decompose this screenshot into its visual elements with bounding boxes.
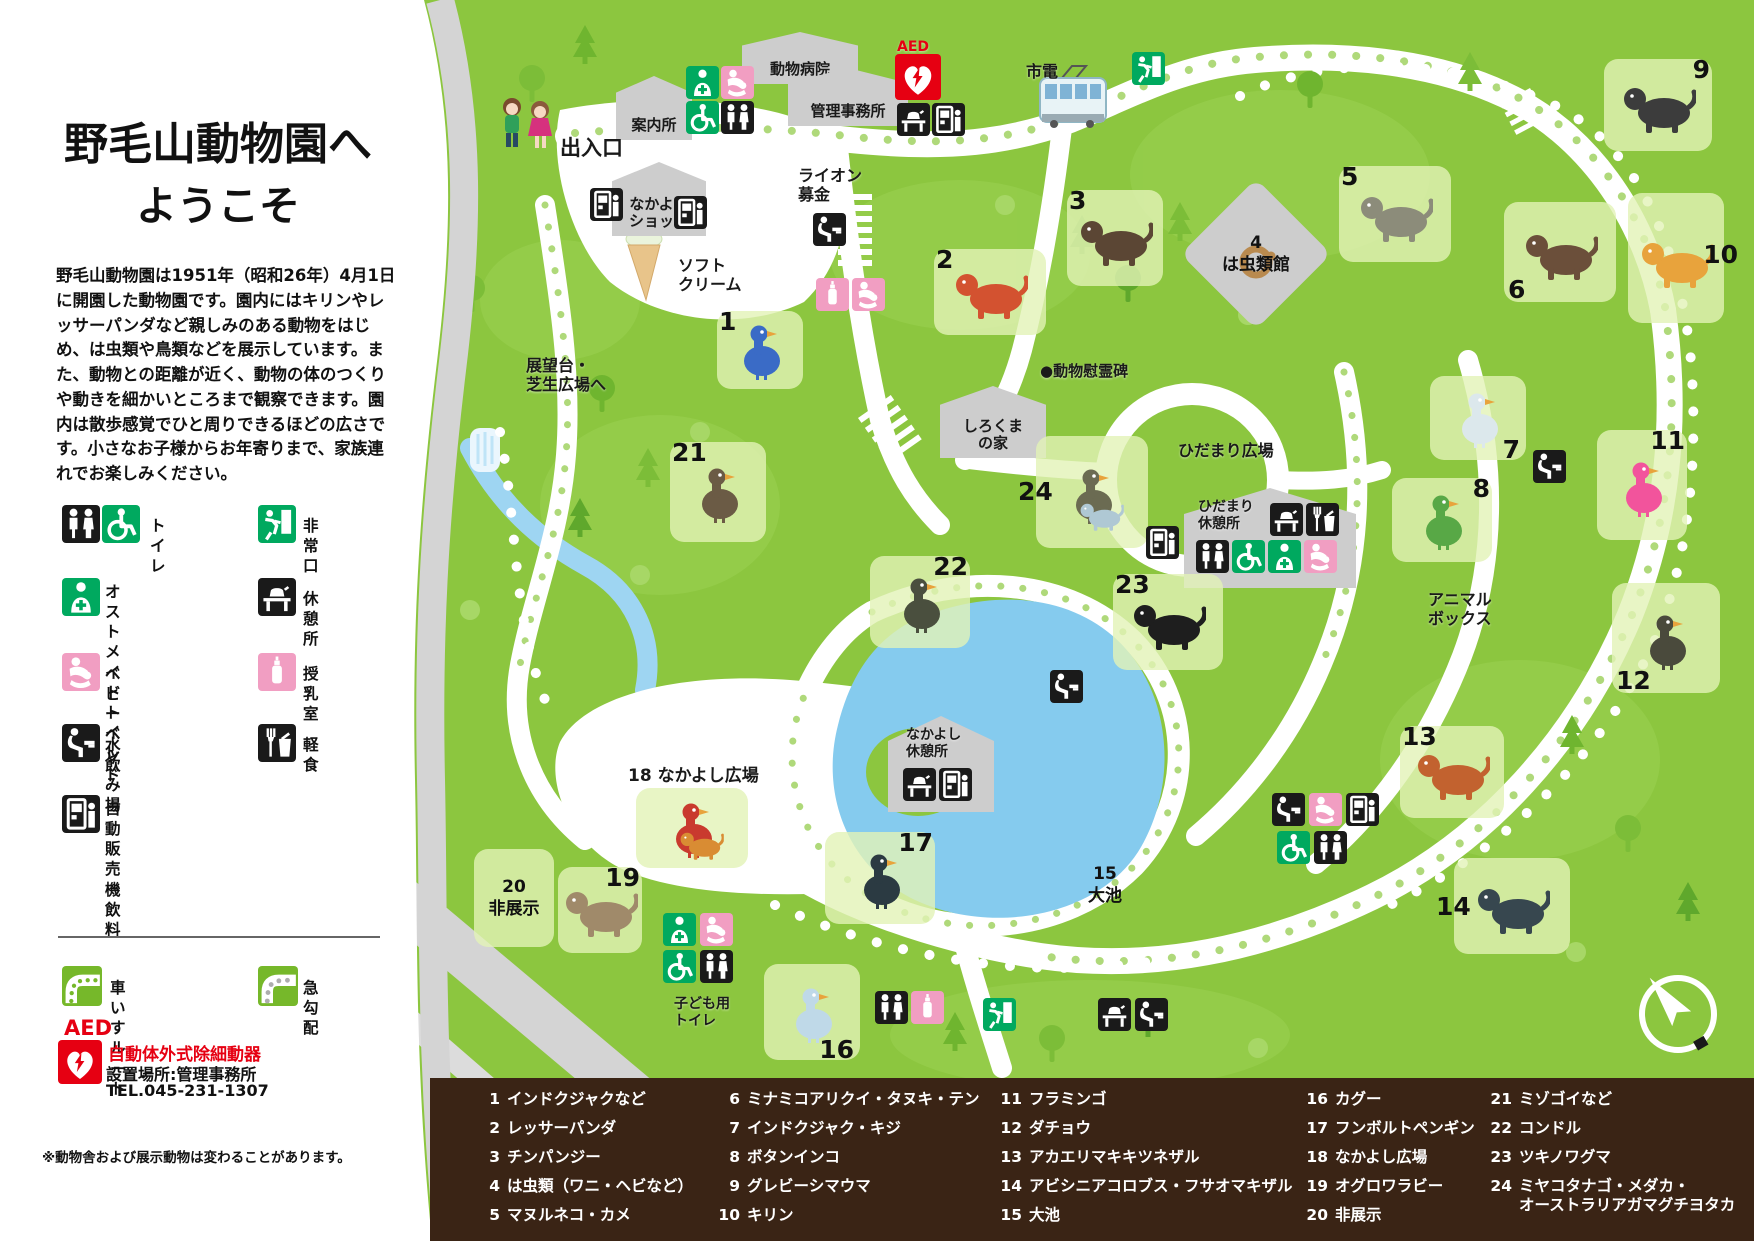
- index-entry-2: 2レッサーパンダ: [472, 1119, 616, 1138]
- legend-label-5: 授乳室: [303, 664, 319, 724]
- exhibit-marker-4: 4 は虫類館: [1191, 189, 1321, 319]
- exhibit-marker-9: 9: [1604, 59, 1712, 151]
- exhibit-marker-6: 6: [1504, 202, 1616, 302]
- exhibit-number: 16: [819, 1037, 854, 1062]
- legend-label-3: 休憩所: [303, 589, 319, 649]
- index-animal-name: レッサーパンダ: [507, 1119, 616, 1138]
- index-number: 2: [472, 1119, 500, 1138]
- baby-icon-12: [852, 278, 885, 311]
- nursing-icon-11: [816, 278, 849, 311]
- index-number: 15: [994, 1206, 1022, 1225]
- exhibit-marker-5: 5: [1339, 166, 1451, 262]
- exhibit-number: 14: [1436, 894, 1471, 919]
- index-animal-name: アビシニアコロブス・フサオマキザル: [1029, 1177, 1293, 1196]
- exhibit-number: 5: [1341, 164, 1358, 189]
- index-animal-name: インドクジャクなど: [507, 1090, 646, 1109]
- wheelchair-route-icon-legend-0: [62, 966, 102, 1006]
- ostomate-icon-18: [1268, 540, 1301, 573]
- index-entry-21: 21ミゾゴイなど: [1484, 1090, 1612, 1109]
- animal-illustration: [1077, 212, 1153, 274]
- index-animal-name: フラミンゴ: [1029, 1090, 1107, 1109]
- index-number: 7: [712, 1119, 740, 1138]
- exit-icon-29: [983, 998, 1016, 1031]
- index-entry-18: 18なかよし広場: [1300, 1148, 1427, 1167]
- exhibit-number: 22: [933, 554, 968, 579]
- route-legend-label-1: 急勾配: [303, 978, 319, 1038]
- toilet-icon-36: [875, 991, 908, 1024]
- exhibit-number: 10: [1703, 242, 1738, 267]
- exhibit-marker-16: 16: [764, 964, 860, 1060]
- rest-icon-22: [903, 768, 936, 801]
- exhibit-marker-3: 3: [1067, 190, 1163, 286]
- aed-tel: TEL.045-231-1307: [106, 1081, 269, 1100]
- index-animal-name: チンパンジー: [507, 1148, 601, 1167]
- index-entry-11: 11フラミンゴ: [994, 1090, 1107, 1109]
- animal-illustration: [1604, 460, 1680, 522]
- map-label-9: なかよし 休憩所: [906, 727, 961, 761]
- fountain-icon-21: [1533, 450, 1566, 483]
- exhibit-number: 8: [1473, 476, 1490, 501]
- index-animal-name: キリン: [747, 1206, 794, 1225]
- aed-icon-4: [895, 54, 941, 100]
- index-number: 20: [1300, 1206, 1328, 1225]
- index-number: 8: [712, 1148, 740, 1167]
- nursing-icon-37: [911, 991, 944, 1024]
- aed-icon: [58, 1040, 102, 1084]
- fountain-icon-legend-6-0: [62, 724, 100, 762]
- ostomate-icon-32: [663, 913, 696, 946]
- exhibit-number: 24: [1018, 479, 1053, 504]
- baby-icon-33: [700, 913, 733, 946]
- exhibit-number: 21: [672, 440, 707, 465]
- index-animal-name: 大池: [1029, 1206, 1060, 1225]
- wheelchair-icon-34: [663, 950, 696, 983]
- index-animal-name: オグロワラビー: [1335, 1177, 1443, 1196]
- aed-abbr: AED: [64, 1016, 112, 1040]
- index-number: 17: [1300, 1119, 1328, 1138]
- rest-icon-legend-3-0: [258, 578, 296, 616]
- index-entry-6: 6ミナミコアリクイ・タヌキ・テン: [712, 1090, 980, 1109]
- index-animal-name: ダチョウ: [1029, 1119, 1091, 1138]
- index-number: 4: [472, 1177, 500, 1196]
- animal-illustration: [1474, 880, 1550, 942]
- index-entry-10: 10キリン: [712, 1206, 794, 1225]
- rest-icon-5: [897, 103, 930, 136]
- index-animal-name: ミヤコタナゴ・メダカ・ オーストラリアガマグチヨタカ: [1519, 1177, 1735, 1216]
- fountain-icon-10: [813, 213, 846, 246]
- index-animal-name: 非展示: [1335, 1206, 1382, 1225]
- building-label: 管理事務所: [788, 103, 908, 126]
- index-animal-name: フンボルトペンギン: [1335, 1119, 1475, 1138]
- exhibit-text: 4 は虫類館: [1191, 189, 1321, 319]
- index-number: 14: [994, 1177, 1022, 1196]
- index-number: 10: [712, 1206, 740, 1225]
- exhibit-marker-17: 17: [825, 832, 935, 924]
- index-number: 12: [994, 1119, 1022, 1138]
- rest-icon-30: [1098, 998, 1131, 1031]
- animal-illustration: [952, 265, 1028, 327]
- fountain-icon-31: [1135, 998, 1168, 1031]
- toilet-icon-16: [1196, 540, 1229, 573]
- index-animal-name: グレビーシマウマ: [747, 1177, 871, 1196]
- index-entry-17: 17フンボルトペンギン: [1300, 1119, 1475, 1138]
- exhibit-marker-24: 24: [1036, 436, 1148, 548]
- map-label-6: ひだまり広場: [1178, 441, 1274, 460]
- vending-icon-9: [674, 196, 707, 229]
- building-label: しろくま の家: [940, 418, 1046, 459]
- building-label: [888, 806, 994, 812]
- vending-icon-6: [932, 103, 965, 136]
- index-number: 21: [1484, 1090, 1512, 1109]
- index-entry-13: 13アカエリマキキツネザル: [994, 1148, 1200, 1167]
- exhibit-number: 2: [936, 247, 953, 272]
- divider: [58, 936, 380, 938]
- exit-icon-legend-1-0: [258, 505, 296, 543]
- map-label-7: ひだまり 休憩所: [1198, 499, 1254, 533]
- animal-illustration-2: [678, 827, 724, 864]
- animal-illustration: [1130, 596, 1206, 658]
- zoo-title-line2: ようこそ: [0, 172, 436, 232]
- building-4: しろくま の家: [940, 386, 1046, 458]
- toilet-icon-3: [721, 101, 754, 134]
- wheelchair-icon-legend-0-1: [102, 505, 140, 543]
- meal-icon-15: [1306, 503, 1339, 536]
- legend-label-1: 非常口: [303, 516, 319, 576]
- ostomate-icon-legend-2-0: [62, 578, 100, 616]
- index-entry-23: 23ツキノワグマ: [1484, 1148, 1611, 1167]
- exhibit-marker-18: [636, 788, 748, 868]
- exhibit-number: 13: [1402, 724, 1437, 749]
- map-label-12: AED: [897, 39, 929, 56]
- exhibit-marker-11: 11: [1597, 430, 1687, 540]
- exhibit-marker-21: 21: [670, 442, 766, 542]
- zoo-map-poster: 案内所動物病院管理事務所なかよし ショップしろくま の家出入口市電ソフト クリー…: [0, 0, 1754, 1241]
- index-animal-name: は虫類（ワニ・ヘビなど）: [507, 1177, 693, 1196]
- footnote: ※動物舎および展示動物は変わることがあります。: [42, 1146, 402, 1166]
- info-panel: 野毛山動物園へ ようこそ 野毛山動物園は1951年（昭和26年）4月1日に開園し…: [0, 0, 460, 1241]
- index-number: 16: [1300, 1090, 1328, 1109]
- map-label-5: ●動物慰霊碑: [1040, 362, 1128, 380]
- exhibit-marker-13: 13: [1400, 726, 1504, 818]
- exhibit-marker-22: 22: [870, 556, 970, 648]
- index-entry-8: 8ボタンインコ: [712, 1148, 840, 1167]
- index-number: 13: [994, 1148, 1022, 1167]
- map-label-2: ソフト クリーム: [678, 256, 742, 294]
- intro-text: 野毛山動物園は1951年（昭和26年）4月1日に開園した動物園です。園内にはキリ…: [56, 264, 398, 487]
- ostomate-icon-0: [686, 66, 719, 99]
- nursing-icon-legend-5-0: [258, 653, 296, 691]
- index-animal-name: ミナミコアリクイ・タヌキ・テン: [747, 1090, 980, 1109]
- index-entry-19: 19オグロワラビー: [1300, 1177, 1443, 1196]
- index-animal-name: ミゾゴイなど: [1519, 1090, 1612, 1109]
- exhibit-text: 20 非展示: [474, 849, 554, 947]
- baby-icon-1: [721, 66, 754, 99]
- index-entry-5: 5マヌルネコ・カメ: [472, 1206, 631, 1225]
- animal-illustration: [1522, 226, 1598, 288]
- index-animal-name: ツキノワグマ: [1519, 1148, 1611, 1167]
- index-entry-24: 24ミヤコタナゴ・メダカ・ オーストラリアガマグチヨタカ: [1484, 1177, 1735, 1216]
- index-entry-16: 16カグー: [1300, 1090, 1382, 1109]
- exhibit-number: 1: [719, 309, 736, 334]
- animal-illustration: [842, 852, 918, 914]
- exhibit-marker-15: 15 大池: [1060, 852, 1150, 918]
- steep-icon-legend-1: [258, 966, 298, 1006]
- vending-icon-13: [1146, 526, 1179, 559]
- map-label-0: 出入口: [560, 136, 623, 161]
- index-number: 5: [472, 1206, 500, 1225]
- vending-icon-26: [1346, 793, 1379, 826]
- index-entry-22: 22コンドル: [1484, 1119, 1581, 1138]
- index-number: 1: [472, 1090, 500, 1109]
- legend-label-8: 自動販売機 飲料: [105, 799, 121, 940]
- index-entry-14: 14アビシニアコロブス・フサオマキザル: [994, 1177, 1293, 1196]
- animal-illustration-2: [1078, 498, 1124, 535]
- animal-illustration: [882, 576, 958, 638]
- index-number: 24: [1484, 1177, 1512, 1216]
- index-entry-3: 3チンパンジー: [472, 1148, 601, 1167]
- exhibit-marker-19: 19: [558, 867, 642, 953]
- toilet-icon-legend-0-0: [62, 505, 100, 543]
- exhibit-number: 19: [605, 865, 640, 890]
- index-number: 22: [1484, 1119, 1512, 1138]
- legend-label-0: トイレ: [150, 516, 166, 576]
- index-number: 3: [472, 1148, 500, 1167]
- baby-icon-19: [1304, 540, 1337, 573]
- index-entry-12: 12ダチョウ: [994, 1119, 1091, 1138]
- zoo-title-line1: 野毛山動物園へ: [0, 108, 436, 172]
- map-label-4: 展望台・ 芝生広場へ: [526, 356, 606, 394]
- toilet-icon-28: [1314, 831, 1347, 864]
- exhibit-marker-8: 8: [1392, 478, 1492, 562]
- index-animal-name: カグー: [1335, 1090, 1382, 1109]
- wheelchair-icon-17: [1232, 540, 1265, 573]
- exhibit-number: 17: [898, 830, 933, 855]
- exhibit-number: 7: [1503, 437, 1520, 462]
- exhibit-number: 9: [1693, 57, 1710, 82]
- exhibit-number: 3: [1069, 188, 1086, 213]
- baby-icon-25: [1309, 793, 1342, 826]
- toilet-icon-35: [700, 950, 733, 983]
- index-animal-name: インドクジャク・キジ: [747, 1119, 901, 1138]
- index-entry-9: 9グレビーシマウマ: [712, 1177, 871, 1196]
- vending-icon-legend-8-0: [62, 795, 100, 833]
- animal-illustration: [680, 466, 756, 528]
- index-entry-4: 4は虫類（ワニ・ヘビなど）: [472, 1177, 693, 1196]
- index-animal-name: マヌルネコ・カメ: [507, 1206, 631, 1225]
- exhibit-marker-12: 12: [1612, 583, 1720, 693]
- animal-illustration: [1414, 746, 1490, 808]
- fountain-icon-24: [1272, 793, 1305, 826]
- building-label: 案内所: [616, 117, 692, 140]
- index-animal-name: アカエリマキキツネザル: [1029, 1148, 1200, 1167]
- index-number: 6: [712, 1090, 740, 1109]
- exhibit-number: 11: [1650, 428, 1685, 453]
- animal-illustration: [1620, 79, 1696, 141]
- index-number: 23: [1484, 1148, 1512, 1167]
- animal-illustration: [1404, 493, 1480, 555]
- vending-icon-23: [939, 768, 972, 801]
- fountain-icon-20: [1050, 670, 1083, 703]
- map-label-1: 市電: [1026, 62, 1058, 81]
- index-animal-name: コンドル: [1519, 1119, 1581, 1138]
- wheelchair-icon-2: [686, 101, 719, 134]
- exhibit-marker-2: 2: [934, 249, 1046, 335]
- map-label-8: アニマル ボックス: [1428, 590, 1492, 628]
- map-label-11: 18 なかよし広場: [628, 766, 759, 786]
- index-number: 11: [994, 1090, 1022, 1109]
- exhibit-marker-20: 20 非展示: [474, 849, 554, 947]
- exit-icon-7: [1132, 52, 1165, 85]
- index-entry-20: 20非展示: [1300, 1206, 1382, 1225]
- wheelchair-icon-27: [1277, 831, 1310, 864]
- index-number: 18: [1300, 1148, 1328, 1167]
- exhibit-marker-10: 10: [1628, 193, 1724, 323]
- meal-icon-legend-7-0: [258, 724, 296, 762]
- exhibit-number: 23: [1115, 572, 1150, 597]
- exhibit-number: 12: [1616, 668, 1651, 693]
- animal-index-legend: 1インドクジャクなど2レッサーパンダ3チンパンジー4は虫類（ワニ・ヘビなど）5マ…: [430, 1078, 1754, 1241]
- index-animal-name: なかよし広場: [1335, 1148, 1427, 1167]
- index-entry-7: 7インドクジャク・キジ: [712, 1119, 901, 1138]
- exhibit-marker-23: 23: [1113, 574, 1223, 670]
- baby-icon-legend-4-0: [62, 653, 100, 691]
- index-entry-15: 15大池: [994, 1206, 1060, 1225]
- index-animal-name: ボタンインコ: [747, 1148, 840, 1167]
- rest-icon-14: [1270, 503, 1303, 536]
- exhibit-number: 6: [1508, 277, 1525, 302]
- exhibit-marker-1: 1: [717, 311, 803, 389]
- exhibit-marker-7: 7: [1430, 376, 1526, 460]
- vending-icon-8: [590, 188, 623, 221]
- exhibit-marker-14: 14: [1454, 858, 1570, 954]
- building-0: 案内所: [616, 76, 692, 140]
- map-label-3: ライオン 募金: [798, 166, 862, 204]
- index-number: 19: [1300, 1177, 1328, 1196]
- legend-label-7: 軽食: [303, 735, 319, 775]
- index-number: 9: [712, 1177, 740, 1196]
- index-entry-1: 1インドクジャクなど: [472, 1090, 646, 1109]
- map-label-10: 子ども用 トイレ: [674, 996, 730, 1030]
- animal-illustration: [562, 883, 638, 945]
- animal-illustration: [1357, 188, 1433, 250]
- exhibit-text: 15 大池: [1060, 852, 1150, 918]
